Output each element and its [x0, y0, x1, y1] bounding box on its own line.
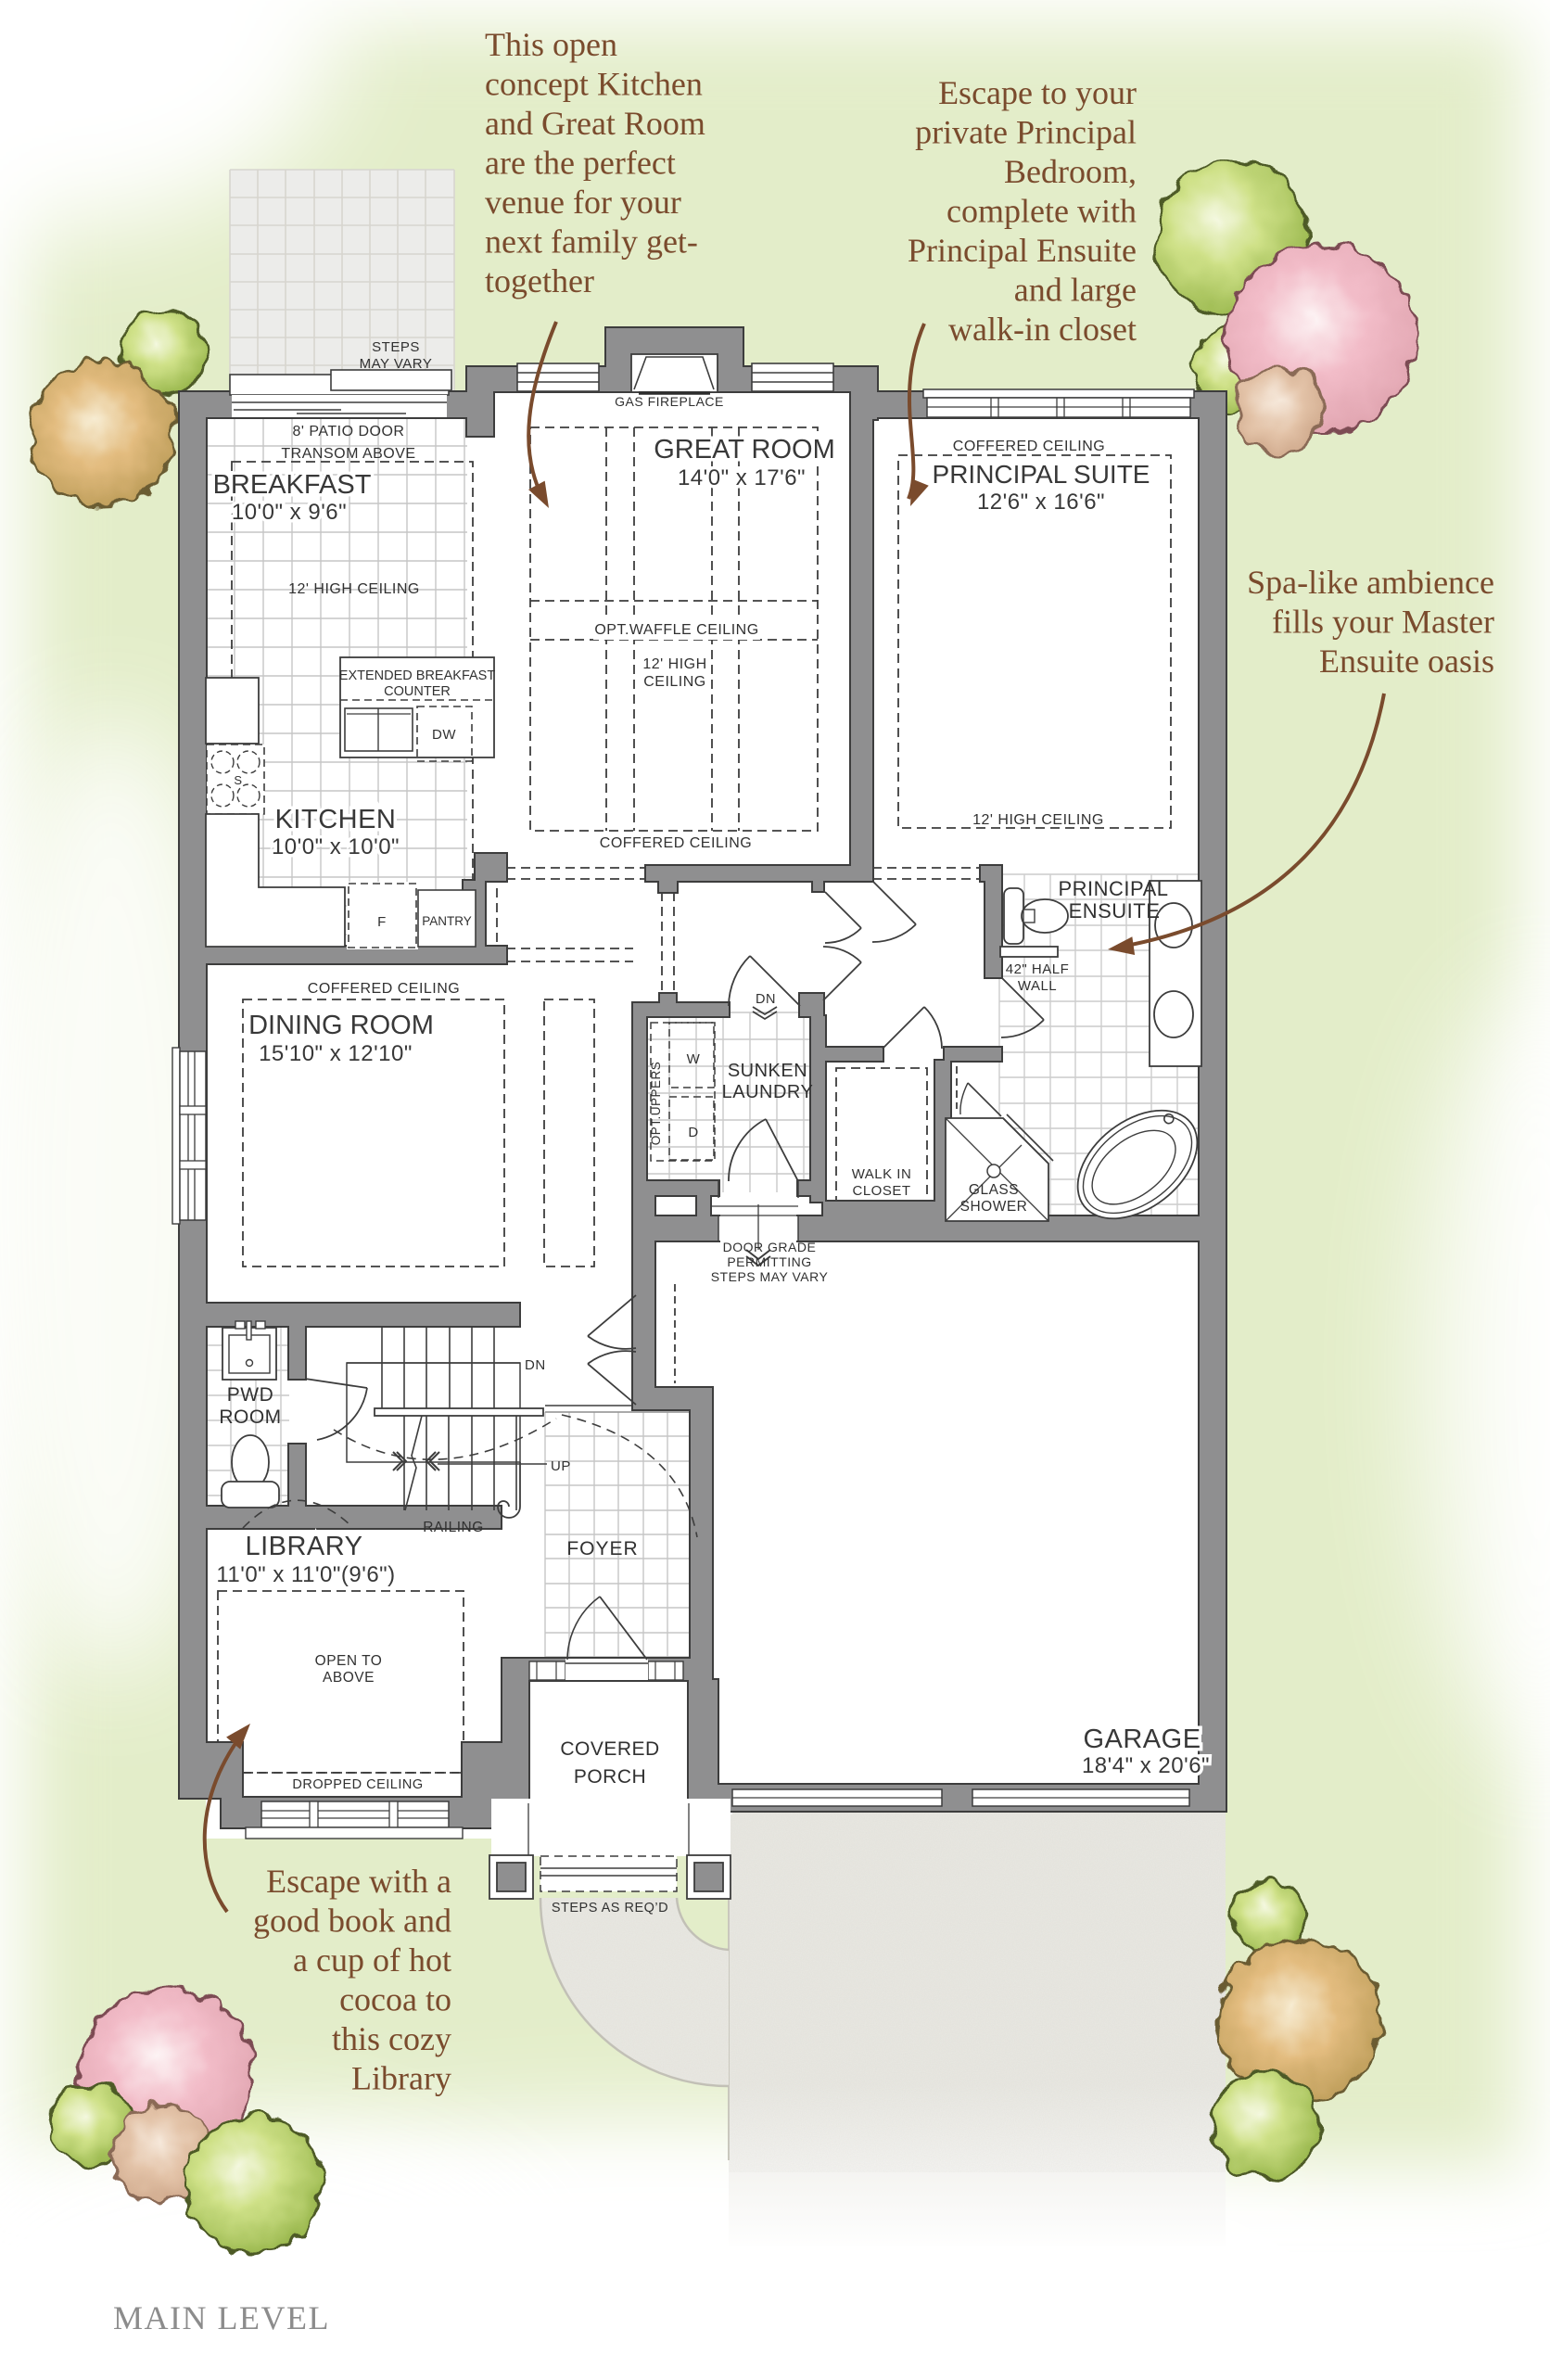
svg-text:MAIN LEVEL: MAIN LEVEL: [113, 2299, 330, 2336]
svg-text:KITCHEN: KITCHEN: [275, 805, 397, 834]
svg-text:CEILING: CEILING: [643, 674, 706, 690]
svg-text:COFFERED CEILING: COFFERED CEILING: [953, 439, 1105, 454]
svg-text:COVERED: COVERED: [560, 1738, 659, 1760]
svg-text:Escape to your: Escape to your: [938, 74, 1137, 111]
svg-text:cocoa to: cocoa to: [339, 1981, 451, 2018]
svg-text:a cup of hot: a cup of hot: [293, 1941, 451, 1979]
svg-text:F: F: [377, 914, 387, 930]
svg-text:W: W: [687, 1051, 701, 1067]
svg-text:together: together: [485, 262, 594, 299]
svg-text:Bedroom,: Bedroom,: [1004, 153, 1137, 190]
svg-text:PRINCIPAL SUITE: PRINCIPAL SUITE: [933, 460, 1150, 489]
svg-text:OPT.WAFFLE CEILING: OPT.WAFFLE CEILING: [594, 622, 758, 638]
svg-text:Spa-like ambience: Spa-like ambience: [1247, 564, 1494, 601]
svg-text:15'10" x 12'10": 15'10" x 12'10": [259, 1041, 413, 1066]
svg-text:TRANSOM ABOVE: TRANSOM ABOVE: [281, 446, 415, 462]
svg-text:COUNTER: COUNTER: [384, 684, 451, 699]
svg-text:This open: This open: [485, 26, 617, 63]
svg-text:WALL: WALL: [1018, 978, 1057, 994]
svg-text:COFFERED CEILING: COFFERED CEILING: [600, 835, 752, 851]
svg-text:DROPPED CEILING: DROPPED CEILING: [292, 1777, 423, 1792]
svg-text:PWD: PWD: [227, 1384, 274, 1406]
svg-text:12' HIGH CEILING: 12' HIGH CEILING: [972, 812, 1104, 828]
svg-text:complete with: complete with: [947, 193, 1137, 230]
svg-text:MAY VARY: MAY VARY: [360, 356, 433, 372]
svg-text:Ensuite oasis: Ensuite oasis: [1319, 643, 1494, 680]
svg-text:DN: DN: [525, 1357, 546, 1373]
svg-text:12' HIGH: 12' HIGH: [642, 656, 706, 672]
svg-text:concept Kitchen: concept Kitchen: [485, 66, 703, 103]
svg-text:Library: Library: [351, 2060, 451, 2097]
svg-text:fills your Master: fills your Master: [1272, 604, 1494, 641]
svg-text:DOOR GRADE: DOOR GRADE: [723, 1240, 817, 1254]
svg-text:PRINCIPAL: PRINCIPAL: [1058, 877, 1168, 900]
svg-text:and Great Room: and Great Room: [485, 105, 705, 142]
svg-text:private Principal: private Principal: [915, 114, 1137, 151]
svg-text:WALK IN: WALK IN: [852, 1166, 912, 1182]
svg-text:GAS FIREPLACE: GAS FIREPLACE: [615, 394, 724, 409]
svg-text:S: S: [234, 773, 242, 787]
svg-text:12'6" x 16'6": 12'6" x 16'6": [977, 490, 1105, 515]
svg-text:good book and: good book and: [253, 1903, 451, 1940]
svg-text:GARAGE: GARAGE: [1083, 1725, 1201, 1754]
svg-text:DW: DW: [432, 727, 456, 743]
svg-text:Escape with a: Escape with a: [266, 1863, 451, 1900]
svg-text:OPEN TO: OPEN TO: [315, 1653, 383, 1669]
svg-text:EXTENDED BREAKFAST: EXTENDED BREAKFAST: [339, 668, 496, 683]
svg-text:venue for your: venue for your: [485, 184, 681, 221]
svg-text:RAILING: RAILING: [423, 1520, 484, 1535]
svg-text:DN: DN: [756, 992, 776, 1007]
svg-text:STEPS MAY VARY: STEPS MAY VARY: [711, 1269, 829, 1284]
svg-text:12' HIGH CEILING: 12' HIGH CEILING: [288, 581, 420, 597]
svg-text:are the perfect: are the perfect: [485, 145, 676, 182]
svg-text:STEPS AS REQ’D: STEPS AS REQ’D: [552, 1901, 668, 1915]
svg-text:18'4" x 20'6": 18'4" x 20'6": [1082, 1753, 1210, 1778]
svg-text:11'0" x 11'0"(9'6"): 11'0" x 11'0"(9'6"): [216, 1562, 395, 1587]
svg-text:COFFERED CEILING: COFFERED CEILING: [308, 981, 460, 997]
svg-text:LAUNDRY: LAUNDRY: [722, 1082, 814, 1102]
svg-text:ENSUITE: ENSUITE: [1069, 899, 1161, 923]
svg-text:PANTRY: PANTRY: [422, 914, 472, 928]
svg-text:CLOSET: CLOSET: [852, 1183, 910, 1199]
svg-text:PERMITTING: PERMITTING: [727, 1254, 811, 1269]
svg-text:ABOVE: ABOVE: [323, 1670, 375, 1686]
svg-text:this cozy: this cozy: [332, 2020, 451, 2057]
svg-text:BREAKFAST: BREAKFAST: [213, 470, 372, 500]
svg-text:OPT.UPPERS: OPT.UPPERS: [649, 1062, 663, 1146]
svg-text:STEPS: STEPS: [372, 339, 420, 355]
svg-text:GLASS: GLASS: [969, 1182, 1019, 1198]
svg-text:DINING ROOM: DINING ROOM: [248, 1011, 434, 1040]
svg-text:D: D: [688, 1125, 698, 1140]
svg-text:SUNKEN: SUNKEN: [728, 1061, 807, 1081]
svg-text:GREAT ROOM: GREAT ROOM: [654, 435, 835, 465]
svg-text:FOYER: FOYER: [566, 1538, 638, 1559]
svg-text:LIBRARY: LIBRARY: [245, 1532, 362, 1561]
svg-text:and large: and large: [1014, 272, 1137, 309]
svg-text:10'0" x 9'6": 10'0" x 9'6": [232, 500, 347, 525]
svg-text:PORCH: PORCH: [574, 1766, 646, 1788]
svg-text:next family get-: next family get-: [485, 223, 698, 261]
svg-text:Principal Ensuite: Principal Ensuite: [908, 232, 1137, 269]
svg-text:8' PATIO DOOR: 8' PATIO DOOR: [293, 424, 405, 439]
svg-text:10'0" x 10'0": 10'0" x 10'0": [272, 834, 400, 859]
svg-text:ROOM: ROOM: [219, 1406, 281, 1428]
svg-text:UP: UP: [551, 1458, 571, 1474]
svg-text:SHOWER: SHOWER: [960, 1199, 1028, 1215]
svg-text:42" HALF: 42" HALF: [1006, 961, 1070, 977]
svg-text:walk-in closet: walk-in closet: [948, 311, 1137, 348]
svg-text:14'0" x 17'6": 14'0" x 17'6": [678, 465, 806, 490]
